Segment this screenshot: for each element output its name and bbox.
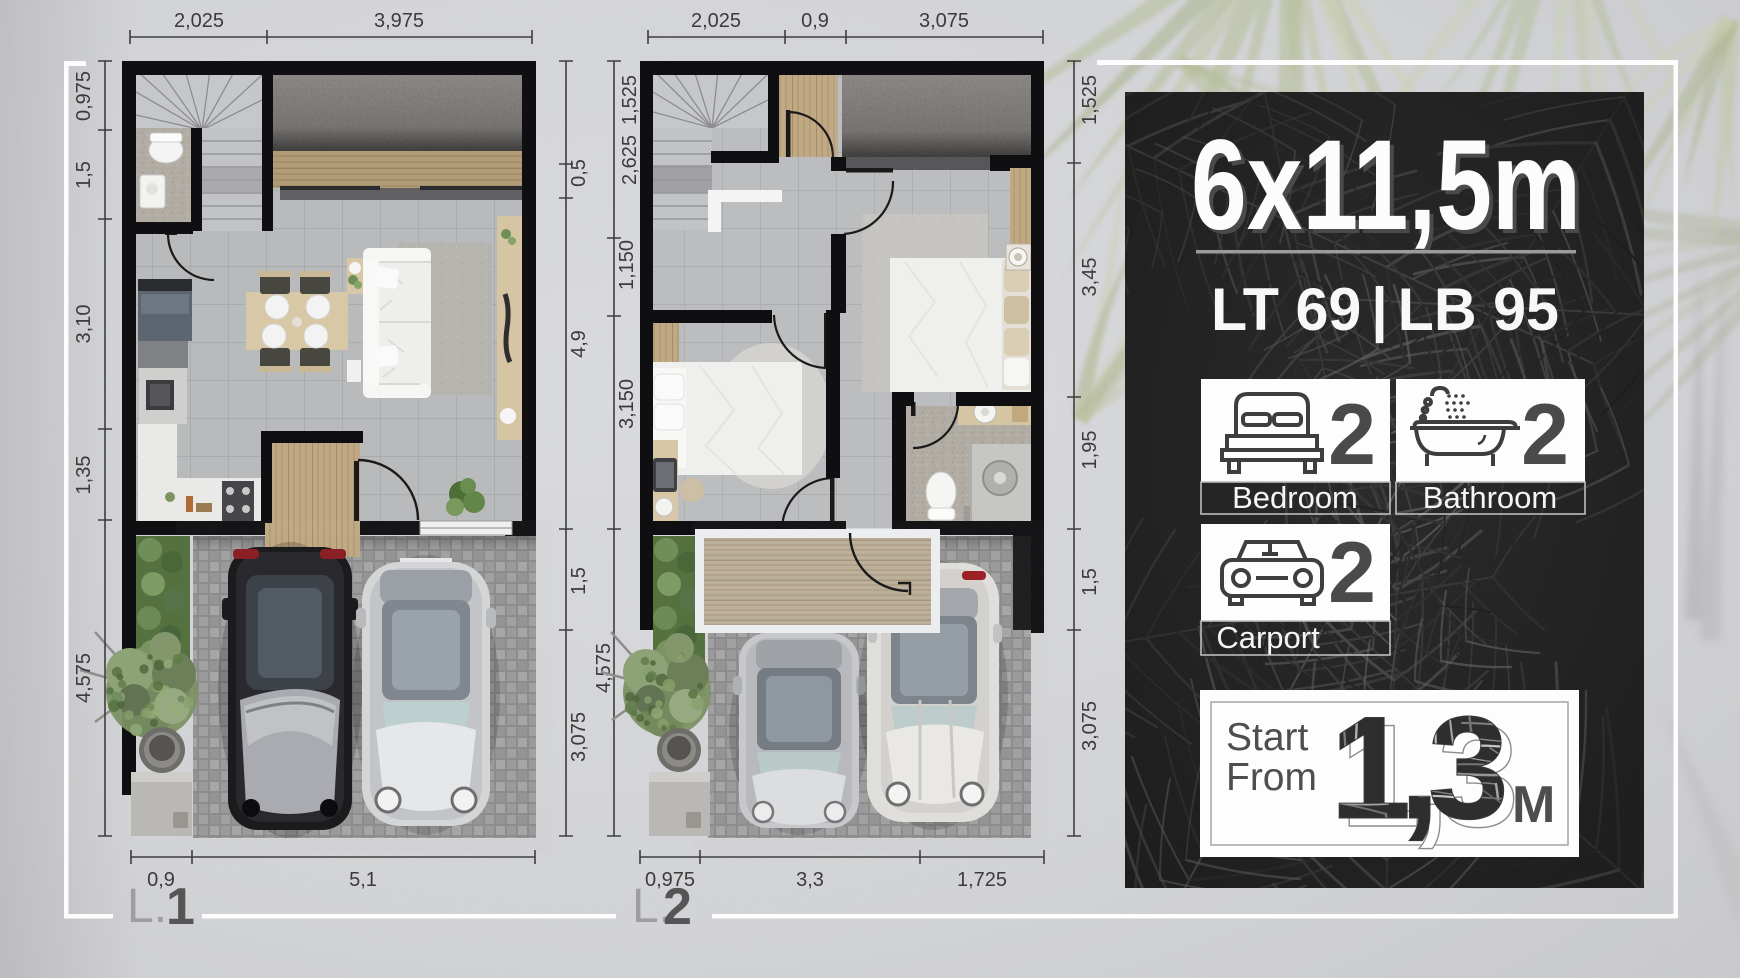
svg-text:1,725: 1,725 xyxy=(957,869,1007,891)
svg-text:0,975: 0,975 xyxy=(73,71,95,121)
svg-text:0,5: 0,5 xyxy=(568,159,590,187)
svg-text:M: M xyxy=(1512,776,1555,834)
svg-text:0,9: 0,9 xyxy=(801,10,829,32)
svg-text:Carport: Carport xyxy=(1216,620,1320,655)
svg-text:6x11,5m: 6x11,5m xyxy=(1191,114,1581,257)
svg-text:1,5: 1,5 xyxy=(73,161,95,189)
svg-text:3,975: 3,975 xyxy=(374,10,424,32)
svg-text:3,150: 3,150 xyxy=(616,379,638,429)
svg-text:Bedroom: Bedroom xyxy=(1232,480,1358,515)
svg-text:3,075: 3,075 xyxy=(1079,701,1101,751)
svg-text:1,35: 1,35 xyxy=(73,456,95,495)
svg-text:1: 1 xyxy=(166,878,195,936)
svg-text:1,150: 1,150 xyxy=(616,240,638,290)
svg-text:3,3: 3,3 xyxy=(796,869,824,891)
svg-text:2,625: 2,625 xyxy=(619,135,641,185)
svg-text:Start: Start xyxy=(1226,716,1309,759)
svg-text:From: From xyxy=(1226,756,1317,799)
svg-text:2: 2 xyxy=(1328,525,1376,621)
svg-text:LT 69 | LB 95: LT 69 | LB 95 xyxy=(1211,276,1559,344)
svg-text:1,3: 1,3 xyxy=(1330,686,1504,849)
svg-text:3,075: 3,075 xyxy=(568,712,590,762)
svg-text:1,525: 1,525 xyxy=(1079,75,1101,125)
svg-text:5,1: 5,1 xyxy=(349,869,377,891)
svg-text:2,025: 2,025 xyxy=(691,10,741,32)
svg-text:2,025: 2,025 xyxy=(174,10,224,32)
svg-text:L.: L. xyxy=(127,880,167,933)
svg-text:4,9: 4,9 xyxy=(568,330,590,358)
svg-text:3,075: 3,075 xyxy=(919,10,969,32)
svg-text:1,5: 1,5 xyxy=(568,567,590,595)
svg-text:3,10: 3,10 xyxy=(73,305,95,344)
svg-text:2: 2 xyxy=(663,878,692,936)
svg-text:1,95: 1,95 xyxy=(1079,431,1101,470)
svg-text:2: 2 xyxy=(1521,387,1569,483)
svg-text:Bathroom: Bathroom xyxy=(1423,480,1557,515)
svg-text:4,575: 4,575 xyxy=(73,653,95,703)
svg-text:4,575: 4,575 xyxy=(593,643,615,693)
svg-text:1,525: 1,525 xyxy=(619,75,641,125)
svg-text:3,45: 3,45 xyxy=(1079,258,1101,297)
svg-text:1,5: 1,5 xyxy=(1079,568,1101,596)
svg-text:2: 2 xyxy=(1328,387,1376,483)
